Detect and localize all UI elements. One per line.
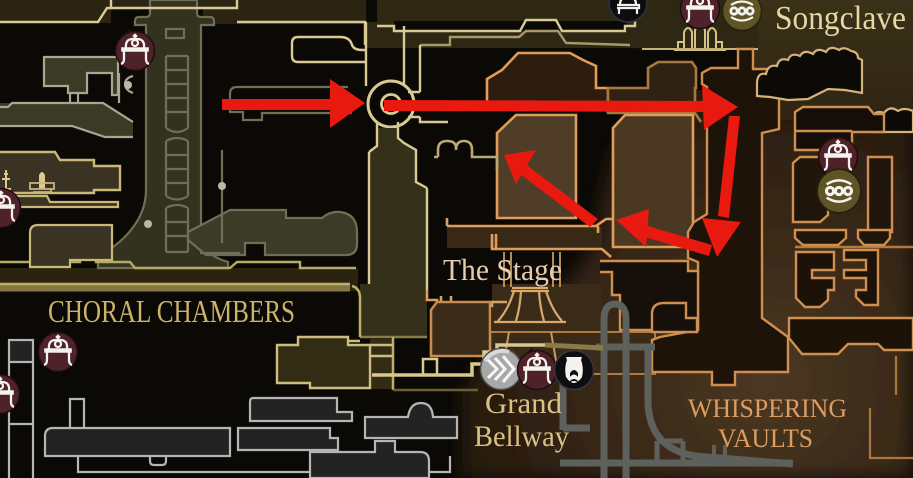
svg-text:VAULTS: VAULTS: [718, 424, 813, 453]
svg-text:The Stage: The Stage: [443, 252, 562, 287]
svg-text:WHISPERING: WHISPERING: [688, 394, 847, 423]
svg-text:CHORAL CHAMBERS: CHORAL CHAMBERS: [48, 293, 295, 329]
svg-text:Songclave: Songclave: [775, 0, 906, 37]
svg-text:Bellway: Bellway: [474, 420, 569, 453]
svg-text:Grand: Grand: [485, 387, 562, 420]
